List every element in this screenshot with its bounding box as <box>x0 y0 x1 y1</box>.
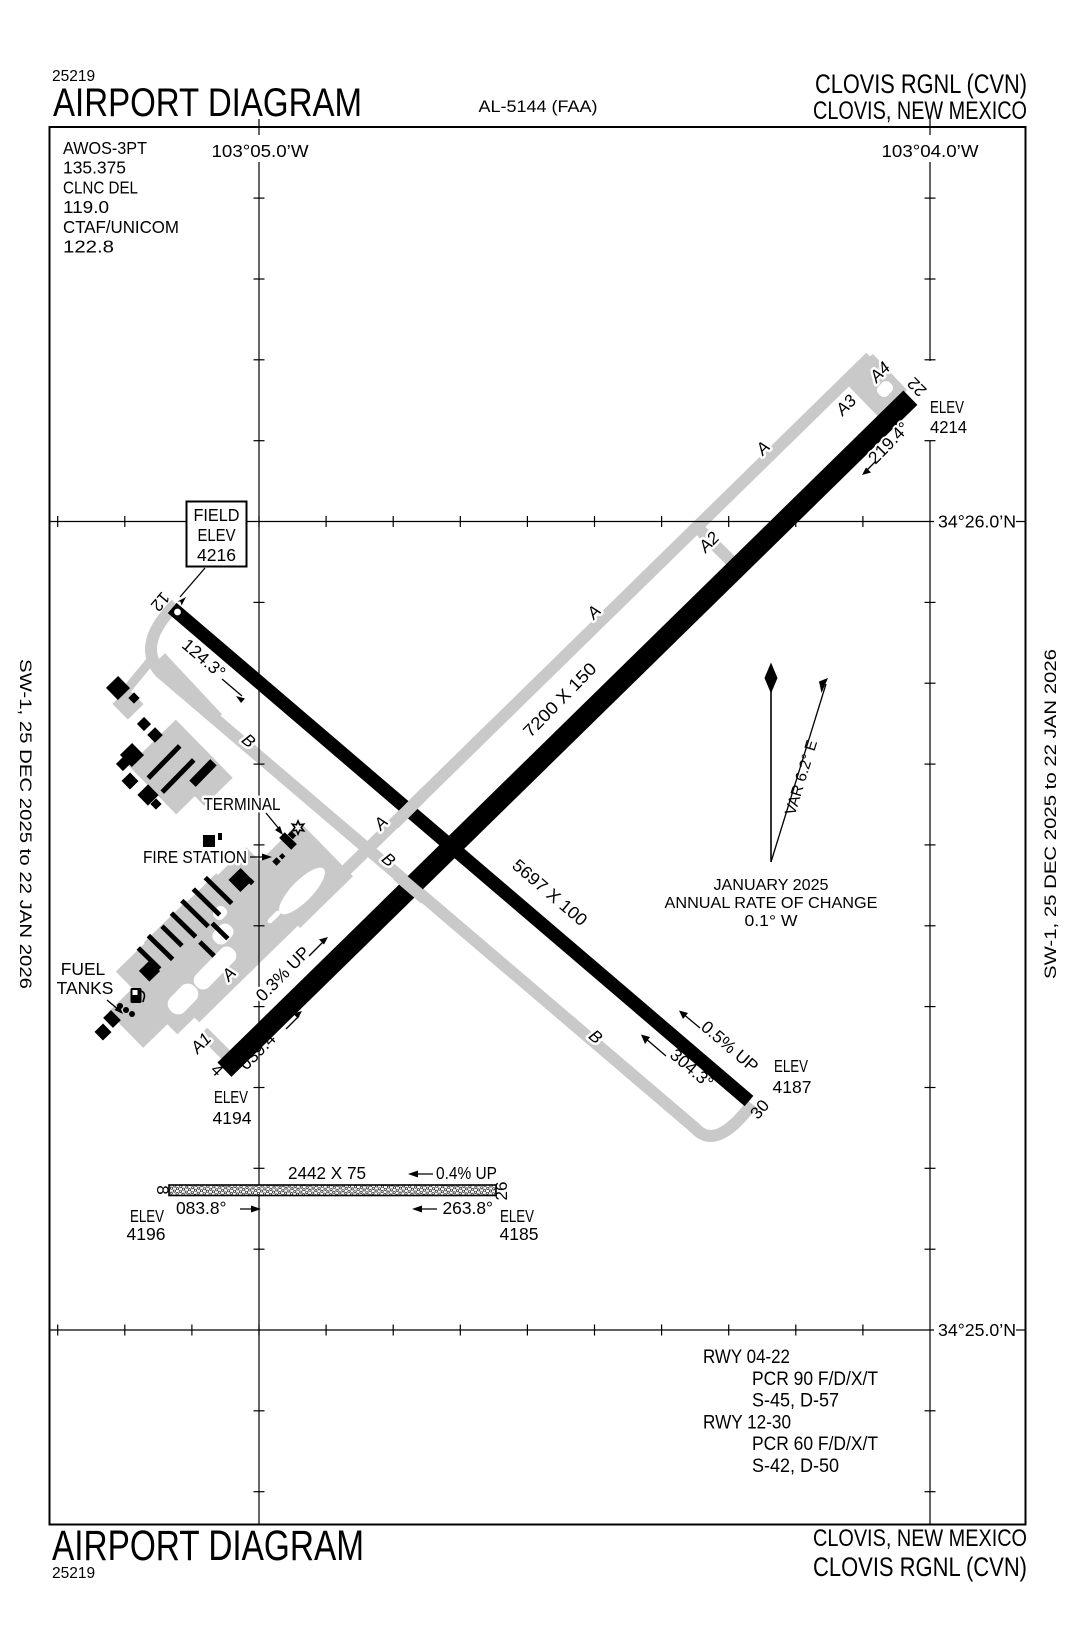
svg-text:263.8°: 263.8° <box>443 1198 493 1218</box>
svg-text:4196: 4196 <box>127 1224 166 1244</box>
svg-text:AL-5144 (FAA): AL-5144 (FAA) <box>479 98 598 116</box>
svg-text:122.8: 122.8 <box>63 237 114 257</box>
svg-text:AIRPORT DIAGRAM: AIRPORT DIAGRAM <box>53 81 362 125</box>
svg-text:4187: 4187 <box>773 1077 812 1097</box>
svg-text:0.4% UP: 0.4% UP <box>436 1163 497 1183</box>
svg-text:103°04.0’W: 103°04.0’W <box>882 141 980 161</box>
svg-text:TANKS: TANKS <box>57 978 114 998</box>
svg-text:AWOS-3PT: AWOS-3PT <box>63 138 147 158</box>
svg-text:CTAF/UNICOM: CTAF/UNICOM <box>63 217 179 237</box>
svg-text:4214: 4214 <box>930 417 967 437</box>
svg-text:083.8°: 083.8° <box>176 1198 226 1218</box>
svg-text:CLOVIS, NEW MEXICO: CLOVIS, NEW MEXICO <box>813 97 1027 125</box>
svg-text:SW-1, 25 DEC 2025 to 22 JAN: SW-1, 25 DEC 2025 to 22 JAN 2026 <box>1042 649 1060 979</box>
svg-text:135.375: 135.375 <box>63 158 126 178</box>
svg-text:RWY 04-22: RWY 04-22 <box>703 1346 790 1368</box>
svg-text:ANNUAL RATE OF CHANGE: ANNUAL RATE OF CHANGE <box>665 895 878 912</box>
svg-text:ELEV: ELEV <box>500 1206 534 1226</box>
svg-text:ELEV: ELEV <box>130 1206 164 1226</box>
svg-text:34°26.0’N: 34°26.0’N <box>938 512 1016 532</box>
svg-text:FIELD: FIELD <box>194 505 240 525</box>
svg-text:8: 8 <box>153 1185 172 1194</box>
svg-text:PCR 90 F/D/X/T: PCR 90 F/D/X/T <box>752 1368 878 1390</box>
svg-text:PCR 60 F/D/X/T: PCR 60 F/D/X/T <box>752 1433 878 1455</box>
svg-text:RWY 12-30: RWY 12-30 <box>703 1411 791 1433</box>
svg-text:AIRPORT DIAGRAM: AIRPORT DIAGRAM <box>52 1523 364 1570</box>
svg-text:2442 X 75: 2442 X 75 <box>288 1163 366 1183</box>
svg-text:119.0: 119.0 <box>63 197 109 217</box>
svg-text:FUEL: FUEL <box>61 959 106 979</box>
svg-text:TERMINAL: TERMINAL <box>204 794 281 814</box>
svg-text:S-45, D-57: S-45, D-57 <box>752 1390 839 1412</box>
svg-text:CLOVIS RGNL (CVN): CLOVIS RGNL (CVN) <box>813 1552 1027 1582</box>
svg-text:26: 26 <box>492 1182 511 1201</box>
svg-text:103°05.0’W: 103°05.0’W <box>212 141 310 161</box>
svg-text:SW-1, 25 DEC 2025 to 22 JAN: SW-1, 25 DEC 2025 to 22 JAN 2026 <box>16 659 34 989</box>
svg-text:S-42, D-50: S-42, D-50 <box>752 1455 839 1477</box>
svg-text:0.1° W: 0.1° W <box>745 913 798 930</box>
svg-text:34°25.0’N: 34°25.0’N <box>938 1320 1016 1340</box>
svg-text:CLOVIS, NEW MEXICO: CLOVIS, NEW MEXICO <box>813 1525 1027 1552</box>
svg-text:25219: 25219 <box>52 1565 95 1582</box>
svg-text:CLOVIS RGNL (CVN): CLOVIS RGNL (CVN) <box>815 69 1027 99</box>
svg-text:4194: 4194 <box>213 1108 252 1128</box>
svg-text:ELEV: ELEV <box>198 525 236 545</box>
svg-text:ELEV: ELEV <box>214 1087 248 1107</box>
svg-text:ELEV: ELEV <box>930 397 964 417</box>
svg-text:JANUARY 2025: JANUARY 2025 <box>714 877 829 894</box>
svg-text:4216: 4216 <box>197 545 236 565</box>
svg-text:ELEV: ELEV <box>774 1056 808 1076</box>
svg-text:CLNC DEL: CLNC DEL <box>63 177 138 197</box>
svg-text:4185: 4185 <box>500 1224 539 1244</box>
svg-text:FIRE STATION: FIRE STATION <box>143 847 247 867</box>
